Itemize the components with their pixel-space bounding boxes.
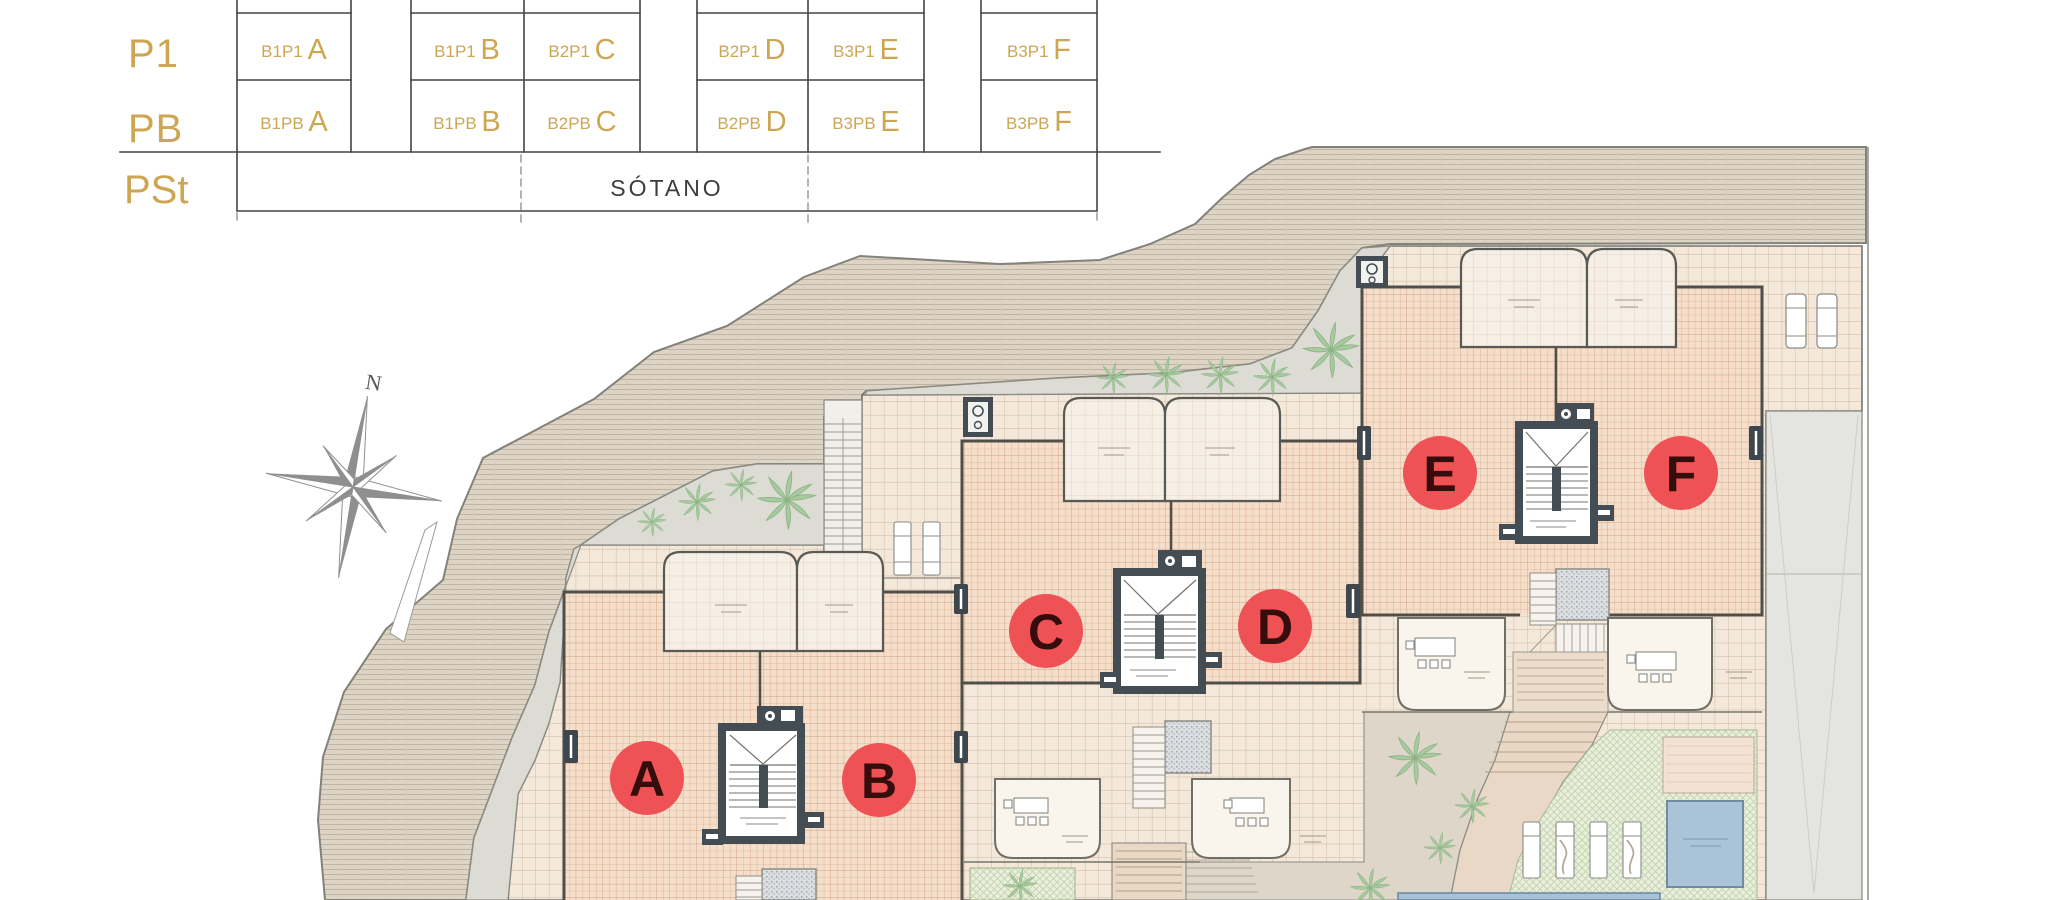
- svg-text:PSt: PSt: [124, 168, 188, 212]
- svg-text:D: D: [1257, 599, 1293, 655]
- svg-text:PB: PB: [128, 107, 183, 151]
- svg-text:E: E: [1423, 446, 1456, 502]
- svg-text:C: C: [1028, 604, 1064, 660]
- svg-text:F: F: [1666, 446, 1697, 502]
- svg-text:P1: P1: [128, 32, 179, 76]
- svg-text:B: B: [861, 753, 897, 809]
- svg-text:A: A: [629, 751, 665, 807]
- svg-text:SÓTANO: SÓTANO: [610, 175, 723, 201]
